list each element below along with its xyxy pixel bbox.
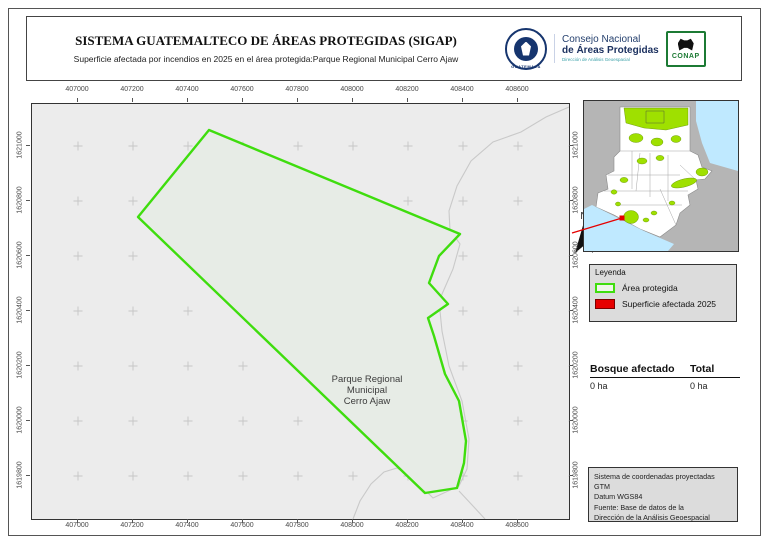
axis-label-x-top: 407000 [65, 86, 88, 93]
axis-label-x-top: 407800 [285, 86, 308, 93]
axis-label-x-top: 408400 [450, 86, 473, 93]
axis-tick [297, 98, 298, 102]
axis-label-x-bottom: 408000 [340, 522, 363, 529]
logo-group: GUATEMALA Consejo Nacional de Áreas Prot… [505, 28, 741, 70]
legend-item-affected-surface: Superficie afectada 2025 [595, 299, 731, 309]
stats-values-row: 0 ha 0 ha [590, 381, 740, 391]
axis-label-x-bottom: 407400 [175, 522, 198, 529]
axis-tick [569, 420, 573, 421]
axis-tick [517, 98, 518, 102]
source-line: Sistema de coordenadas proyectadas [594, 472, 732, 482]
legend-item-label: Área protegida [622, 283, 678, 293]
org-name-line2: de Áreas Protegidas [562, 45, 659, 56]
axis-label-x-bottom: 408200 [395, 522, 418, 529]
source-line: Fuente: Base de datos de la [594, 503, 732, 513]
axis-label-x-top: 407400 [175, 86, 198, 93]
axis-tick [77, 98, 78, 102]
axis-tick [187, 98, 188, 102]
map-document-page: SISTEMA GUATEMALTECO DE ÁREAS PROTEGIDAS… [0, 0, 768, 543]
source-line: GTM [594, 482, 732, 492]
axis-label-y-right: 1620400 [573, 296, 580, 323]
stats-header-row: Bosque afectado Total [590, 363, 740, 378]
axis-label-x-bottom: 407600 [230, 522, 253, 529]
axis-tick [569, 200, 573, 201]
axis-label-x-top: 407600 [230, 86, 253, 93]
axis-tick [462, 98, 463, 102]
axis-label-y-left: 1620000 [17, 406, 24, 433]
stats-col1-header: Bosque afectado [590, 363, 690, 375]
axis-label-y-left: 1620200 [17, 351, 24, 378]
guatemala-locator-inset-map [583, 100, 739, 252]
axis-label-y-left: 1620400 [17, 296, 24, 323]
axis-label-y-right: 1619800 [573, 461, 580, 488]
axis-label-y-left: 1620800 [17, 186, 24, 213]
affected-surface-swatch [595, 299, 615, 309]
axis-label-y-right: 1620800 [573, 186, 580, 213]
axis-tick [407, 519, 408, 523]
stats-col2-header: Total [690, 363, 714, 375]
header: SISTEMA GUATEMALTECO DE ÁREAS PROTEGIDAS… [26, 16, 742, 81]
org-name-line1: Consejo Nacional [562, 34, 659, 45]
area-label-line3: Cerro Ajaw [307, 396, 427, 407]
conap-logo: CONAP [666, 31, 706, 67]
axis-label-x-top: 408600 [505, 86, 528, 93]
axis-tick [569, 365, 573, 366]
axis-label-y-right: 1620200 [573, 351, 580, 378]
axis-tick [26, 255, 30, 256]
axis-label-y-right: 1620600 [573, 241, 580, 268]
conap-logo-text: CONAP [672, 53, 700, 60]
axis-tick [187, 519, 188, 523]
axis-tick [462, 519, 463, 523]
axis-label-y-right: 1621000 [573, 131, 580, 158]
axis-tick [77, 519, 78, 523]
axis-label-x-top: 408200 [395, 86, 418, 93]
jaguar-icon [678, 38, 694, 51]
axis-tick [26, 200, 30, 201]
seal-text: GUATEMALA [507, 64, 545, 69]
axis-tick [352, 98, 353, 102]
axis-tick [517, 519, 518, 523]
axis-tick [26, 310, 30, 311]
affected-forest-stats: Bosque afectado Total 0 ha 0 ha [590, 363, 740, 391]
axis-tick [569, 255, 573, 256]
map-graphics [32, 104, 569, 519]
guatemala-government-seal-icon: GUATEMALA [505, 28, 547, 70]
main-map-canvas: Parque Regional Municipal Cerro Ajaw N 0… [31, 103, 570, 520]
axis-tick [352, 519, 353, 523]
axis-label-x-bottom: 407000 [65, 522, 88, 529]
axis-tick [26, 420, 30, 421]
page-title: SISTEMA GUATEMALTECO DE ÁREAS PROTEGIDAS… [75, 33, 457, 49]
area-label-line2: Municipal [307, 385, 427, 396]
axis-tick [569, 310, 573, 311]
axis-tick [132, 98, 133, 102]
axis-tick [242, 98, 243, 102]
axis-label-y-left: 1621000 [17, 131, 24, 158]
axis-tick [569, 475, 573, 476]
legend-item-protected-area: Área protegida [595, 283, 731, 293]
axis-tick [26, 365, 30, 366]
legend-item-label: Superficie afectada 2025 [622, 299, 716, 309]
axis-label-y-left: 1620600 [17, 241, 24, 268]
axis-tick [242, 519, 243, 523]
area-label-line1: Parque Regional [307, 374, 427, 385]
header-titles: SISTEMA GUATEMALTECO DE ÁREAS PROTEGIDAS… [27, 31, 505, 65]
axis-label-y-right: 1620000 [573, 406, 580, 433]
protected-area-swatch [595, 283, 615, 293]
axis-tick [297, 519, 298, 523]
axis-label-x-bottom: 408400 [450, 522, 473, 529]
axis-label-x-bottom: 407200 [120, 522, 143, 529]
protected-area-label: Parque Regional Municipal Cerro Ajaw [307, 374, 427, 408]
axis-tick [407, 98, 408, 102]
axis-label-x-top: 407200 [120, 86, 143, 93]
legend-title: Leyenda [595, 268, 731, 277]
source-line: Dirección de la Análisis Geoespacial [594, 513, 732, 523]
axis-label-x-bottom: 407800 [285, 522, 308, 529]
axis-tick [132, 519, 133, 523]
stats-col1-value: 0 ha [590, 381, 690, 391]
org-department: Dirección de Análisis Geoespacial [562, 58, 659, 63]
source-line: Datum WGS84 [594, 492, 732, 502]
axis-tick [26, 475, 30, 476]
legend: Leyenda Área protegida Superficie afecta… [589, 264, 737, 322]
axis-label-x-bottom: 408600 [505, 522, 528, 529]
axis-tick [569, 145, 573, 146]
quetzal-emblem-icon [514, 37, 538, 61]
axis-label-x-top: 408000 [340, 86, 363, 93]
page-subtitle: Superficie afectada por incendios en 202… [74, 54, 459, 65]
conap-wordmark: Consejo Nacional de Áreas Protegidas Dir… [554, 34, 659, 63]
coordinate-system-info-box: Sistema de coordenadas proyectadas GTM D… [588, 467, 738, 522]
stats-col2-value: 0 ha [690, 381, 708, 391]
axis-tick [26, 145, 30, 146]
axis-label-y-left: 1619800 [17, 461, 24, 488]
